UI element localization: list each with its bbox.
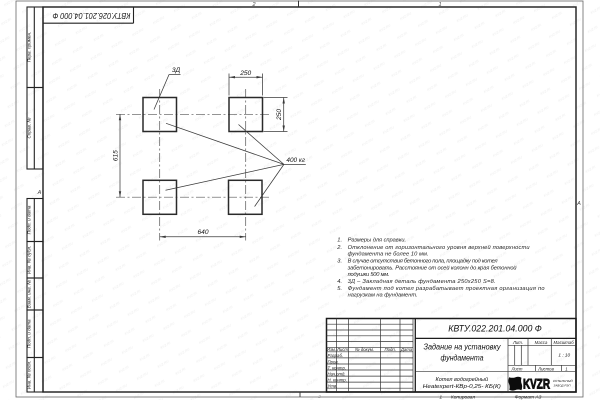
svg-text:4.: 4. [337,279,342,285]
svg-text:Размеры для справки.: Размеры для справки. [348,238,407,244]
svg-text:250: 250 [239,70,251,77]
svg-text:615: 615 [113,150,120,161]
svg-text:Разраб.: Разраб. [328,353,344,358]
svg-text:Нач.отд.: Нач.отд. [328,371,346,376]
svg-text:Т. контр.: Т. контр. [328,365,347,370]
svg-text:Масса: Масса [535,340,548,345]
svg-text:1 : 10: 1 : 10 [558,352,570,357]
svg-text:2: 2 [317,394,321,399]
svg-text:1.: 1. [337,238,342,244]
svg-text:Подп. и дата: Подп. и дата [27,205,32,234]
svg-text:Фундамент под котел разрабатыв: Фундамент под котел разрабатывает проект… [348,286,545,292]
svg-text:фундамента не более 10 мм.: фундамента не более 10 мм. [348,252,429,258]
svg-text:Н. контр.: Н. контр. [328,377,347,382]
svg-text:Справ. №: Справ. № [27,118,32,139]
svg-text:Изм.: Изм. [327,347,336,352]
svg-text:Heatexpert-КВр-0,25- КБ(К): Heatexpert-КВр-0,25- КБ(К) [423,384,501,390]
svg-text:5.: 5. [337,286,342,292]
svg-text:Пров.: Пров. [328,359,339,364]
svg-text:Копировал: Копировал [451,394,476,400]
svg-text:Формат А3: Формат А3 [515,394,542,400]
svg-text:ЗАВОД РЭП: ЗАВОД РЭП [554,383,572,387]
svg-text:Инв. № дубл.: Инв. № дубл. [27,246,32,274]
svg-text:Задание на установку: Задание на установку [424,343,502,352]
svg-text:640: 640 [197,229,208,236]
svg-text:Дата: Дата [400,347,413,352]
svg-text:забетонировать. Расстояние от: забетонировать. Расстояние от осей колон… [347,264,518,271]
svg-text:Лит.: Лит. [512,340,523,345]
svg-text:Котел водогрейный: Котел водогрейный [436,376,489,383]
svg-text:Отклонение от горизонтального: Отклонение от горизонтального уровня вер… [348,244,531,251]
svg-text:Лист: Лист [336,347,348,352]
svg-text:Лист: Лист [510,366,522,371]
svg-text:Масштаб: Масштаб [554,340,575,345]
svg-text:подушки 500 мм.: подушки 500 мм. [348,272,390,278]
svg-text:Подп. и дата: Подп. и дата [27,319,32,348]
svg-text:А: А [37,190,42,196]
svg-text:KVZR: KVZR [523,377,550,392]
svg-text:нагрузкам на фундамент.: нагрузкам на фундамент. [348,293,418,299]
svg-text:3.: 3. [337,259,342,265]
svg-text:КВТУ.022.201.04.000 Ф: КВТУ.022.201.04.000 Ф [448,323,542,334]
svg-text:3Д – Закладная деталь фундамен: 3Д – Закладная деталь фундамента 250x250… [348,279,496,285]
svg-text:3Д: 3Д [172,67,181,74]
svg-text:КВТУ.026.201.04.000 Ф: КВТУ.026.201.04.000 Ф [53,11,131,20]
svg-text:Листов: Листов [537,366,554,371]
svg-text:2.: 2. [336,245,342,251]
svg-text:Подп.: Подп. [384,347,395,352]
svg-text:№ докум.: № докум. [355,347,374,352]
svg-text:Взам. инв. №: Взам. инв. № [27,280,32,308]
svg-text:Перв. примен.: Перв. примен. [27,32,32,63]
svg-text:фундамента: фундамента [441,354,484,363]
svg-text:1: 1 [439,394,442,400]
svg-text:400 кг: 400 кг [286,157,305,164]
svg-text:В случае отсутствия бетонного: В случае отсутствия бетонного пола, площ… [348,259,499,265]
svg-text:Утв.: Утв. [328,384,338,389]
svg-text:А: А [576,201,581,207]
svg-text:250: 250 [276,109,283,121]
svg-text:Инв. № подл.: Инв. № подл. [27,361,32,390]
